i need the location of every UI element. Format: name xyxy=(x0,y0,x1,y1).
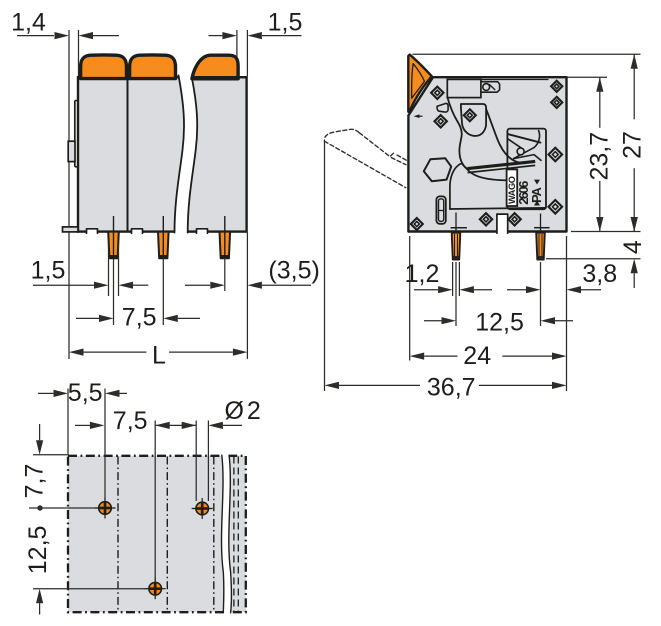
svg-text:(3,5): (3,5) xyxy=(268,256,319,284)
svg-text:3,8: 3,8 xyxy=(582,260,617,288)
svg-text:12,5: 12,5 xyxy=(24,526,52,575)
svg-text:Ø 2: Ø 2 xyxy=(225,397,260,425)
svg-text:7,5: 7,5 xyxy=(122,304,157,332)
svg-text:23,7: 23,7 xyxy=(586,132,614,181)
svg-text:4: 4 xyxy=(619,240,647,254)
svg-text:5,5: 5,5 xyxy=(68,379,103,407)
svg-text:36,7: 36,7 xyxy=(427,374,476,402)
svg-text:7,7: 7,7 xyxy=(21,464,49,499)
svg-text:24: 24 xyxy=(463,342,491,370)
svg-text:PA: PA xyxy=(529,186,544,203)
svg-text:1,5: 1,5 xyxy=(268,8,303,36)
svg-text:1,2: 1,2 xyxy=(405,260,440,288)
svg-text:1,4: 1,4 xyxy=(11,8,46,36)
svg-text:7,5: 7,5 xyxy=(113,407,148,435)
svg-text:12,5: 12,5 xyxy=(475,308,524,336)
svg-text:1,5: 1,5 xyxy=(31,257,66,285)
svg-text:L: L xyxy=(152,342,166,370)
svg-text:27: 27 xyxy=(618,131,646,159)
